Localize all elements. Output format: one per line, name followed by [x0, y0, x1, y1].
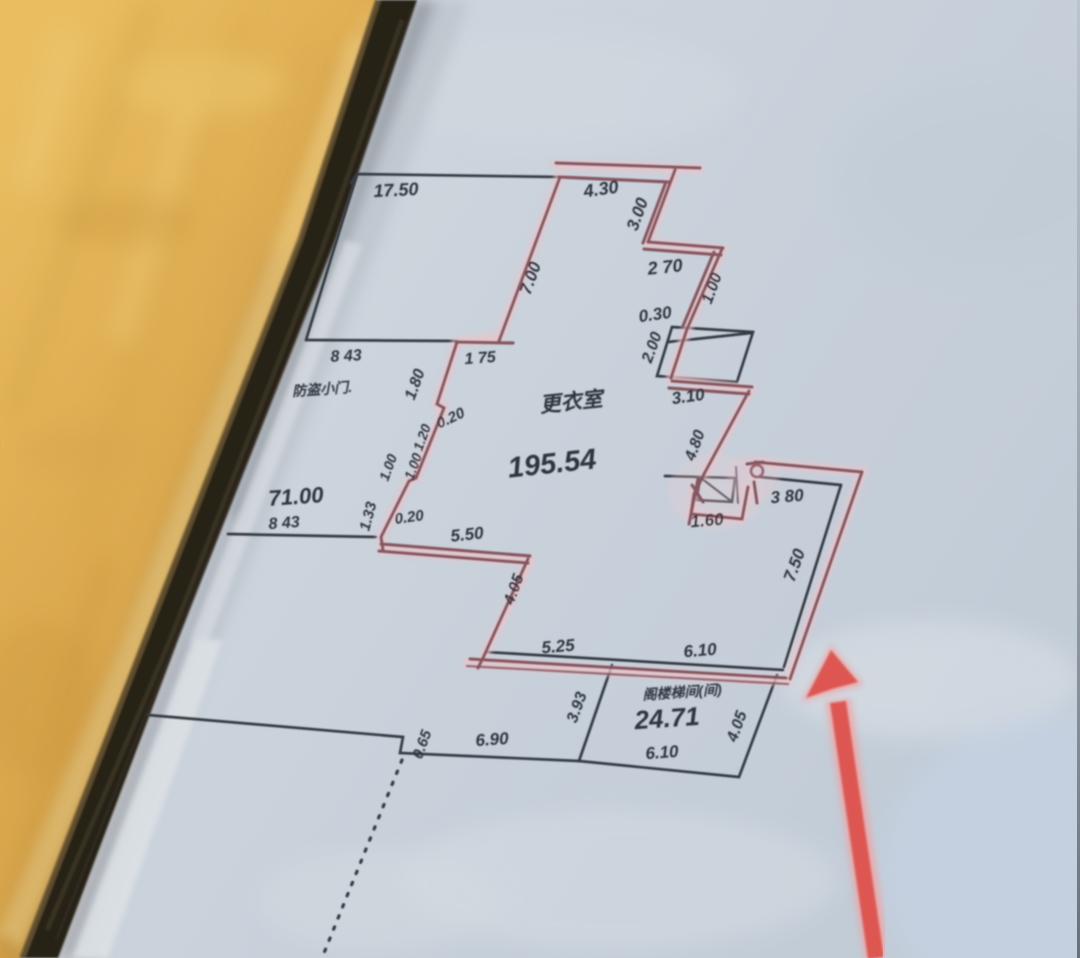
svg-text:6.10: 6.10: [645, 742, 680, 763]
svg-text:71.00: 71.00: [268, 482, 325, 511]
svg-text:24.71: 24.71: [632, 701, 700, 736]
svg-text:6.90: 6.90: [475, 729, 510, 750]
svg-text:2 70: 2 70: [646, 255, 684, 279]
svg-text:3 80: 3 80: [770, 486, 805, 508]
svg-text:1 75: 1 75: [464, 349, 497, 368]
svg-text:17.50: 17.50: [373, 179, 419, 201]
svg-text:8 43: 8 43: [268, 514, 300, 533]
svg-text:5.25: 5.25: [541, 636, 576, 658]
svg-text:5.50: 5.50: [450, 523, 485, 545]
svg-text:1.60: 1.60: [690, 510, 725, 532]
svg-text:6.10: 6.10: [683, 640, 718, 662]
svg-text:8 43: 8 43: [330, 347, 362, 366]
